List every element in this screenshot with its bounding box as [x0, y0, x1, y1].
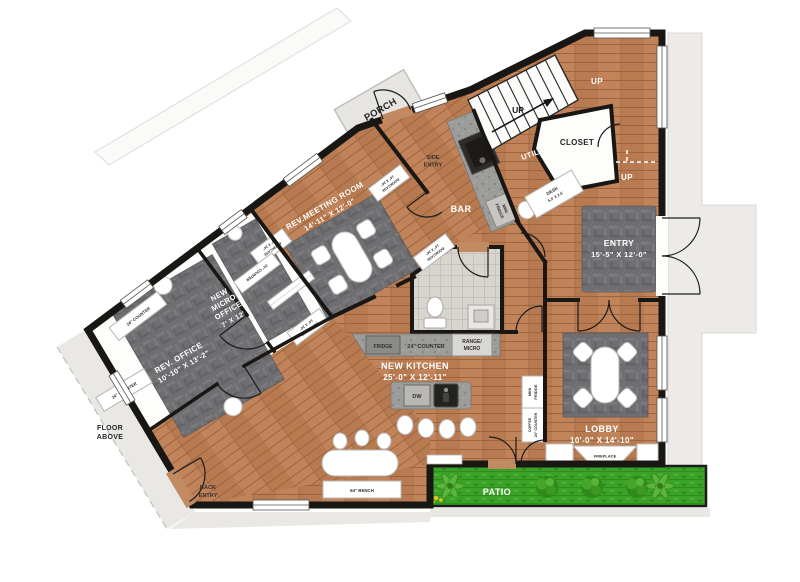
lobby-dims: 10'-0" X 14'-10" — [570, 436, 634, 445]
patio-bush-2 — [581, 476, 603, 498]
range-label-2: MICRO — [464, 346, 481, 352]
coffee-counter: COFFEE 24" COUNTER — [522, 408, 544, 442]
back-entry-label-2: ENTRY — [199, 493, 218, 499]
side-entry-label-2: ENTRY — [424, 163, 443, 169]
patio-label: PATIO — [483, 487, 511, 497]
fireplace: FIREPLACE — [546, 444, 658, 463]
entry-name: ENTRY — [604, 238, 635, 248]
back-entry-label-1: BACK — [200, 485, 216, 491]
dining-set: 64" BENCH — [322, 430, 401, 498]
coffee-label-2: 24" COUNTER — [534, 412, 538, 437]
bathroom-sink — [468, 305, 494, 329]
patio-bush-3 — [626, 476, 648, 498]
stairs-up-label: UP — [512, 105, 524, 115]
kitchen-counter: FRIDGE 24" COUNTER RANGE/ MICRO — [352, 334, 500, 356]
patio: PATIO — [430, 466, 706, 506]
range-label-1: RANGE/ — [462, 339, 482, 345]
kitchen-dims: 25'-0" X 12'-11" — [383, 373, 447, 382]
bar-label: BAR — [451, 204, 472, 214]
dw-label: DW — [412, 394, 422, 400]
kitchen-name: NEW KITCHEN — [381, 361, 449, 371]
floor-plan: PORCH 64" BENCH FRIDGE 24" COUNTER RANGE… — [0, 0, 800, 582]
fireplace-label: FIREPLACE — [594, 454, 617, 459]
range — [452, 334, 492, 356]
bench-label: 64" BENCH — [350, 488, 374, 493]
side-entry-label-1: SIDE — [426, 155, 439, 161]
closet-label: CLOSET — [560, 138, 594, 147]
counter-label: 24" COUNTER — [407, 344, 444, 350]
floor-above-label-2: ABOVE — [97, 434, 123, 441]
entry-dims: 15'-5" X 12'-0" — [591, 250, 647, 259]
floor-above-label-1: FLOOR — [97, 425, 123, 432]
entry-rug — [582, 206, 656, 292]
lobby-mini-fridge-label-1: MINI — [527, 388, 532, 396]
up-label-landing: UP — [591, 77, 603, 86]
fridge-label: FRIDGE — [374, 344, 394, 350]
lobby-mini-fridge: MINI FRIDGE — [522, 376, 544, 408]
patio-bush-1 — [536, 476, 558, 498]
lobby-name: LOBBY — [585, 424, 619, 434]
lobby-set — [563, 333, 648, 417]
coffee-label-1: COFFEE — [528, 417, 532, 432]
lobby-mini-fridge-label-2: FRIDGE — [533, 384, 538, 399]
up-label-entry: UP — [621, 173, 633, 182]
